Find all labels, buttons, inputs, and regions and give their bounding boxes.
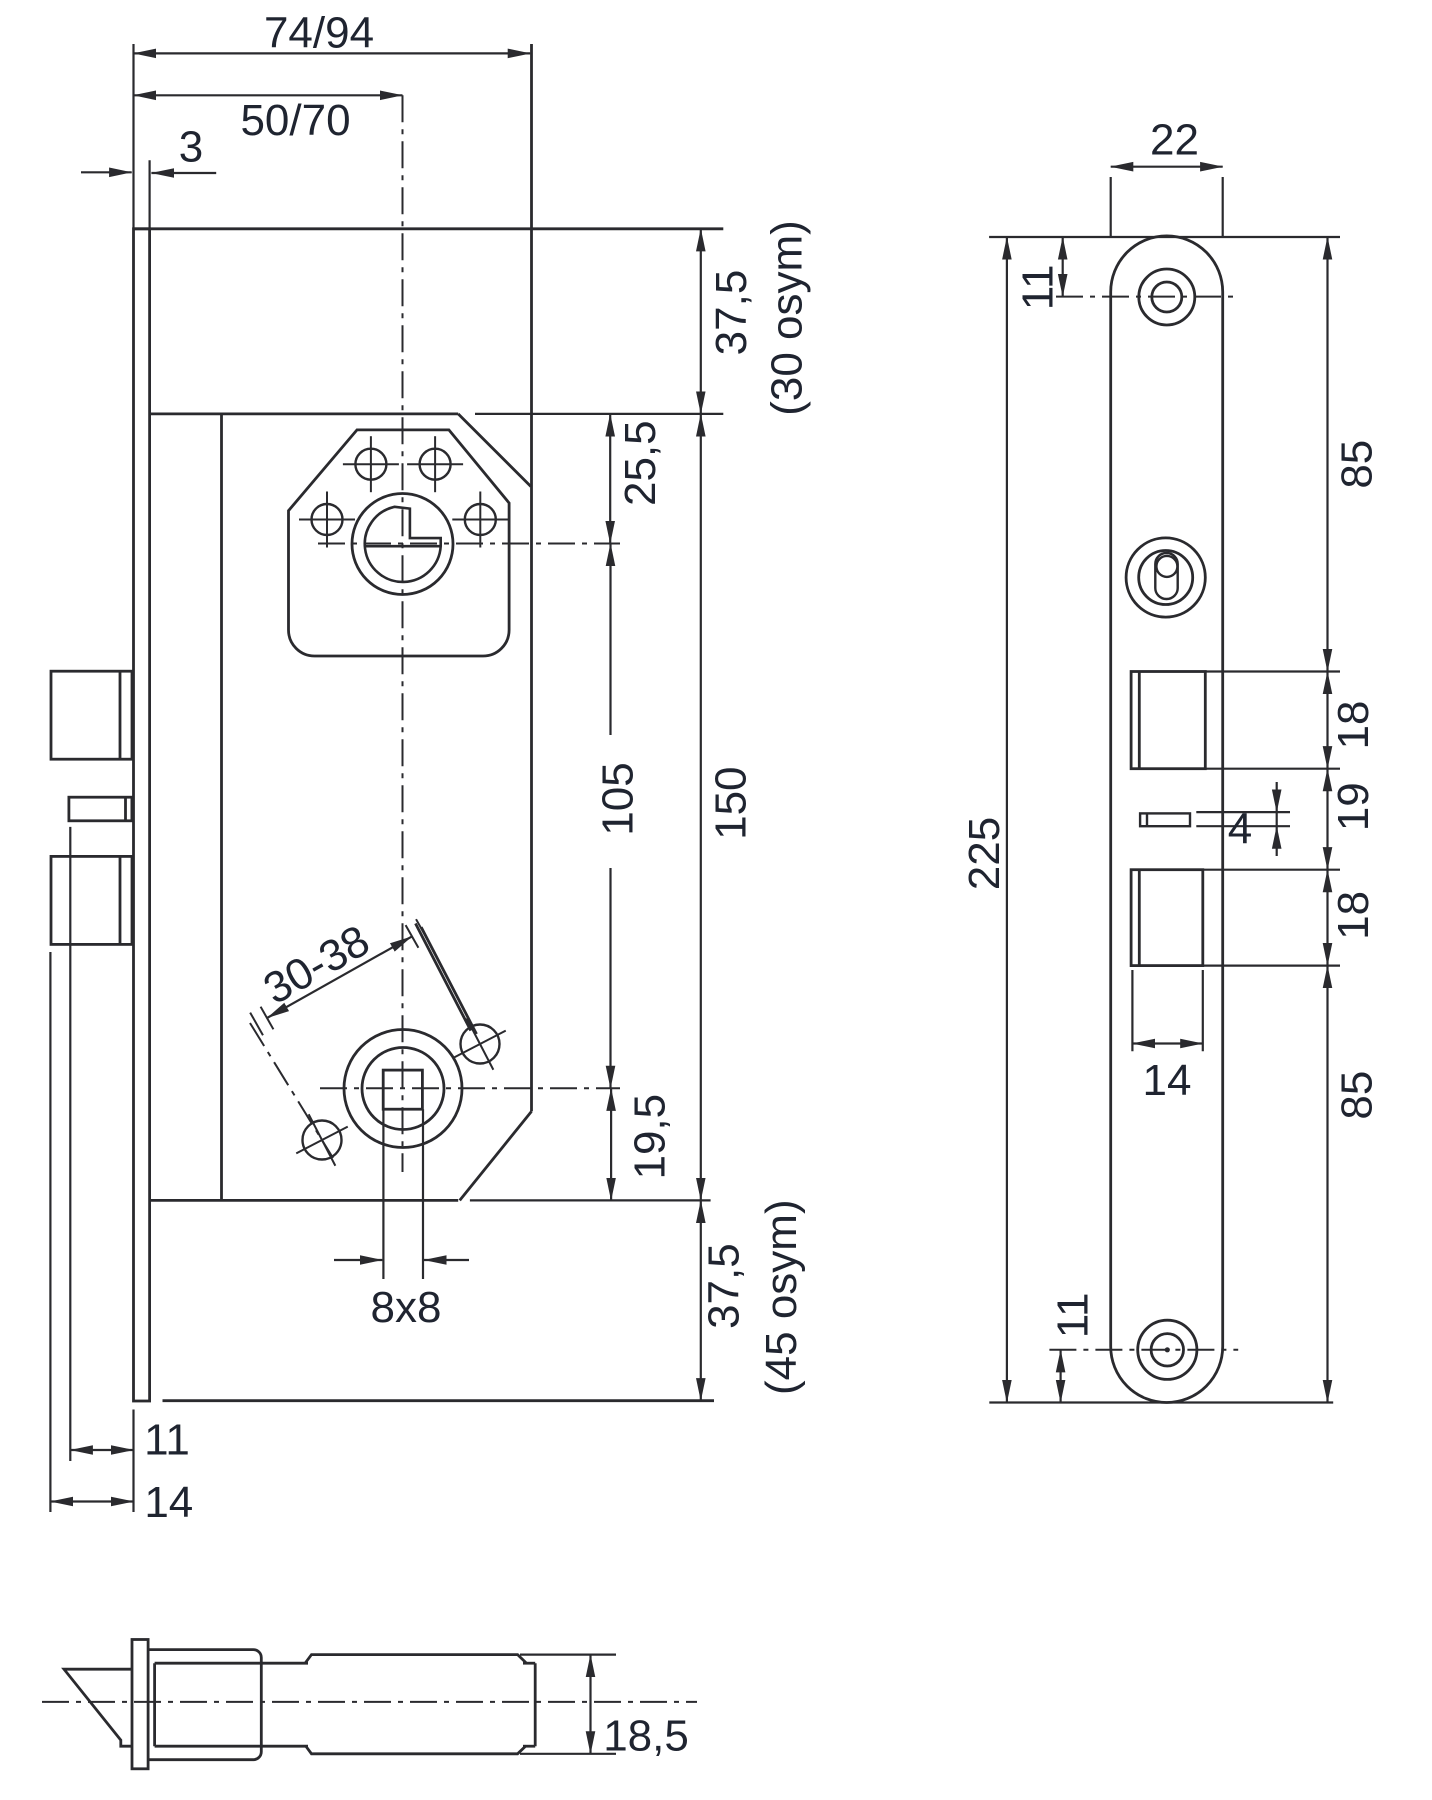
svg-text:11: 11: [144, 1416, 190, 1465]
svg-text:11: 11: [1048, 1293, 1097, 1339]
svg-text:25,5: 25,5: [616, 420, 665, 506]
svg-text:18: 18: [1329, 701, 1378, 750]
svg-text:22: 22: [1150, 115, 1199, 164]
svg-text:19,5: 19,5: [626, 1094, 675, 1180]
svg-text:105: 105: [594, 762, 643, 835]
svg-text:18: 18: [1329, 891, 1378, 940]
svg-text:14: 14: [1143, 1056, 1192, 1105]
svg-text:74/94: 74/94: [264, 9, 374, 58]
svg-text:85: 85: [1333, 440, 1382, 489]
svg-text:3: 3: [179, 122, 203, 171]
svg-text:225: 225: [960, 817, 1009, 890]
svg-text:50/70: 50/70: [240, 96, 350, 145]
svg-text:19: 19: [1329, 782, 1378, 831]
svg-text:150: 150: [707, 766, 756, 839]
svg-text:37,5: 37,5: [700, 1243, 749, 1329]
svg-text:18,5: 18,5: [603, 1712, 689, 1761]
svg-text:4: 4: [1228, 805, 1252, 854]
svg-text:(30 osym): (30 osym): [763, 220, 812, 416]
svg-text:(45 osym): (45 osym): [757, 1199, 806, 1395]
svg-text:8x8: 8x8: [371, 1283, 442, 1332]
svg-text:37,5: 37,5: [707, 270, 756, 356]
svg-text:14: 14: [144, 1478, 193, 1527]
svg-text:85: 85: [1333, 1071, 1382, 1120]
svg-text:11: 11: [1014, 265, 1063, 311]
